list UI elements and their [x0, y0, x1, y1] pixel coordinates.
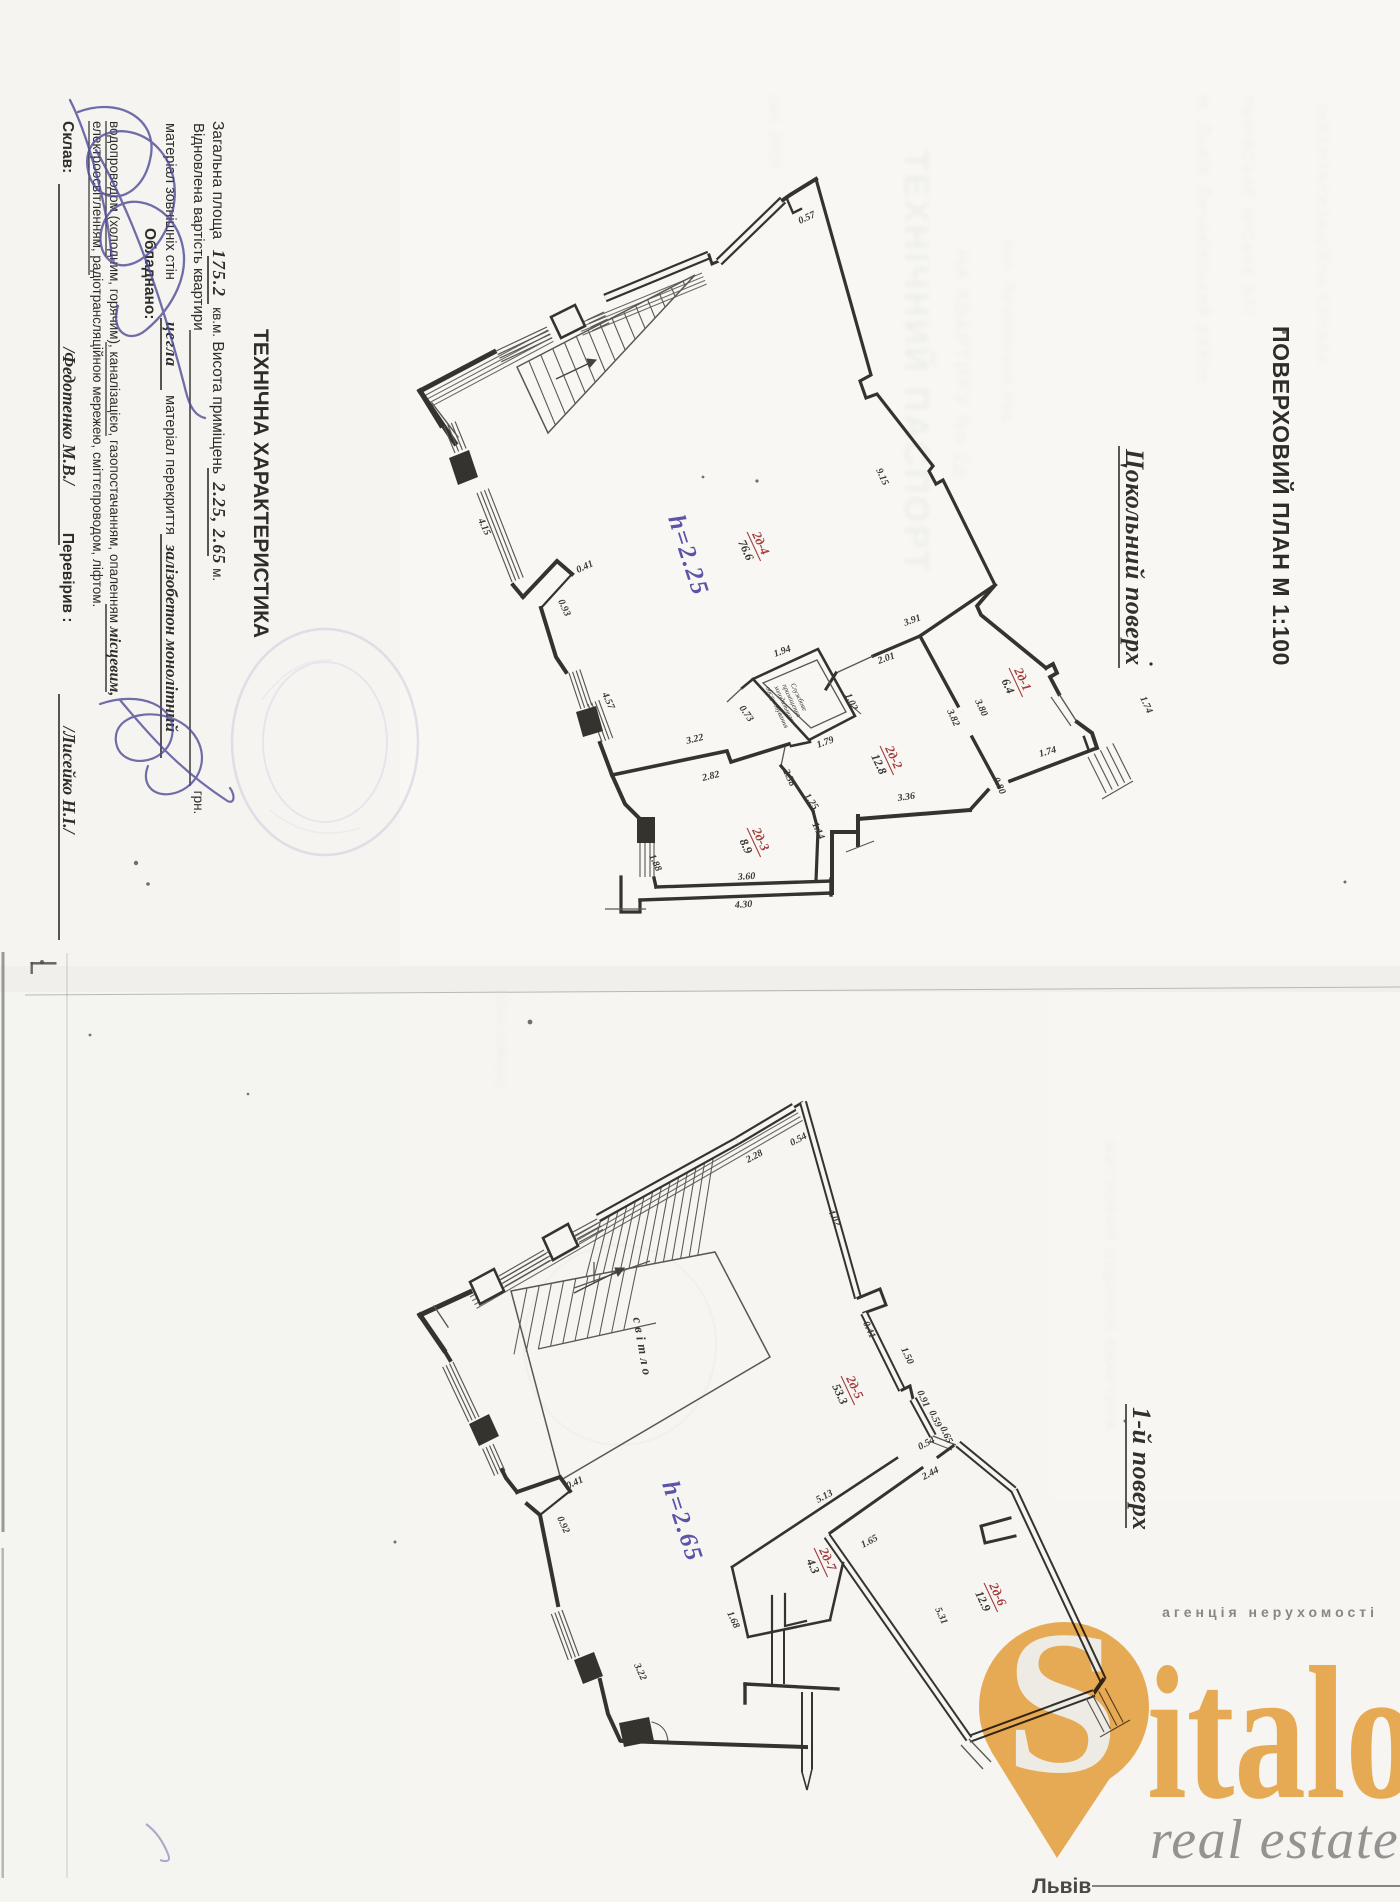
svg-text:Цокольний поверх: Цокольний поверх	[1120, 448, 1149, 666]
svg-text:ЖИТЛОВИЙ БУДИНОК КВАРТИРА: ЖИТЛОВИЙ БУДИНОК КВАРТИРА	[1101, 1140, 1119, 1432]
svg-text:м. Львів Личаківський район: м. Львів Личаківський район	[1194, 95, 1214, 385]
svg-text:ІНВЕНТАРИЗАЦІЙНА СПРАВА: ІНВЕНТАРИЗАЦІЙНА СПРАВА	[1314, 105, 1332, 367]
svg-text:Львів: Львів	[1032, 1875, 1091, 1898]
svg-text:план поверху: план поверху	[494, 990, 510, 1089]
svg-text:ТЕХНІЧНИЙ ПАСПОРТ: ТЕХНІЧНИЙ ПАСПОРТ	[897, 150, 936, 574]
svg-text:4.30: 4.30	[733, 899, 752, 911]
svg-text:1-й поверх: 1-й поверх	[1127, 1407, 1156, 1530]
svg-text:3.60: 3.60	[736, 871, 755, 883]
svg-text:real estate: real estate	[1150, 1809, 1399, 1871]
svg-text:НА КВАРТИРУ No 2д: НА КВАРТИРУ No 2д	[950, 250, 972, 479]
svg-text:ПОВЕРХОВИЙ ПЛАН М 1:100: ПОВЕРХОВИЙ ПЛАН М 1:100	[1268, 326, 1295, 666]
svg-text:агенція нерухомості: агенція нерухомості	[1162, 1604, 1378, 1620]
svg-text:Загальна площа 175.2 кв.м. В: Загальна площа 175.2 кв.м. Висота приміщ…	[209, 121, 229, 581]
svg-text:вул. Личаківська буд.: вул. Личаківська буд.	[999, 240, 1018, 427]
svg-text:italo: italo	[1147, 1629, 1400, 1839]
svg-text:ТЕХНІЧНА ХАРАКТЕРИСТИКА: ТЕХНІЧНА ХАРАКТЕРИСТИКА	[249, 329, 272, 638]
svg-text:смт 2024: смт 2024	[766, 95, 783, 169]
svg-text:ЛЬВІВСЬКЕ МІСЬКЕ БТІ: ЛЬВІВСЬКЕ МІСЬКЕ БТІ	[1239, 95, 1256, 316]
svg-text:S: S	[1005, 1589, 1119, 1816]
